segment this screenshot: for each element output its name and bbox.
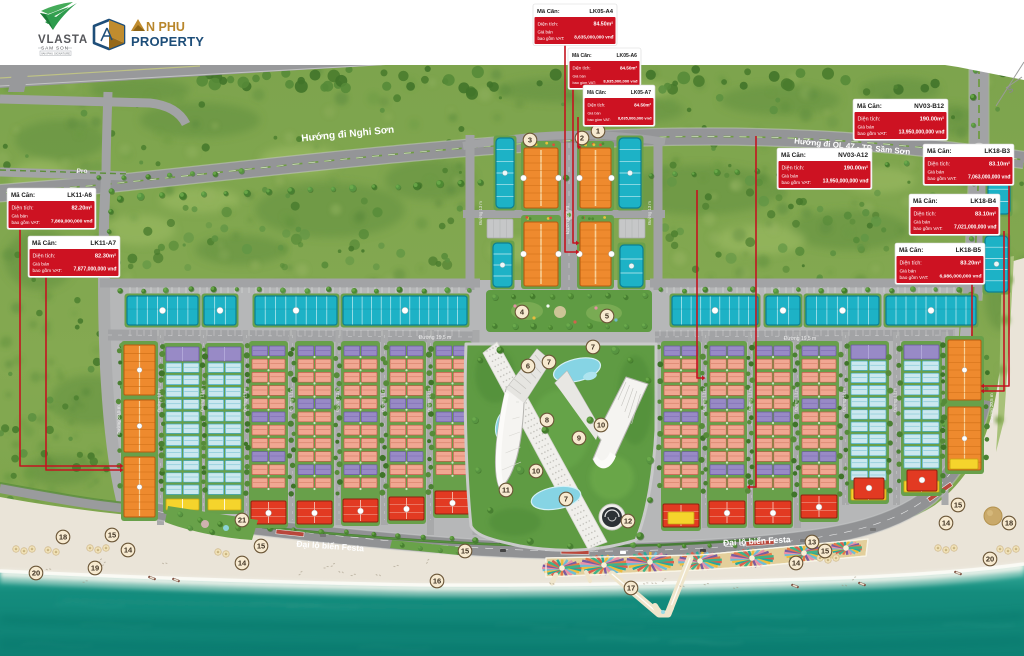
svg-text:Diện tích:: Diện tích: bbox=[538, 22, 559, 28]
svg-text:Giá bán: Giá bán bbox=[588, 112, 601, 116]
svg-text:Đường 13 m: Đường 13 m bbox=[157, 388, 162, 412]
svg-text:Mã Căn:: Mã Căn: bbox=[927, 148, 952, 155]
svg-text:Mã Căn:: Mã Căn: bbox=[32, 240, 57, 247]
svg-text:Mã Căn:: Mã Căn: bbox=[572, 53, 592, 59]
svg-text:LK18-B3: LK18-B3 bbox=[984, 148, 1010, 155]
svg-text:NV03-A12: NV03-A12 bbox=[838, 152, 868, 159]
svg-text:LK05-A4: LK05-A4 bbox=[589, 9, 613, 15]
svg-text:6: 6 bbox=[526, 362, 530, 371]
svg-text:bao gồm VAT:: bao gồm VAT: bbox=[928, 176, 957, 182]
svg-text:82.30m²: 82.30m² bbox=[95, 253, 116, 260]
svg-text:LK11-A7: LK11-A7 bbox=[90, 240, 116, 247]
svg-text:LK18-B4: LK18-B4 bbox=[970, 198, 996, 205]
svg-text:5: 5 bbox=[605, 312, 609, 321]
svg-text:14: 14 bbox=[238, 559, 247, 568]
svg-text:Mã Căn:: Mã Căn: bbox=[913, 198, 938, 205]
svg-text:16: 16 bbox=[433, 577, 441, 586]
svg-text:Đường 13 m: Đường 13 m bbox=[702, 388, 707, 412]
svg-text:Đường 13 m: Đường 13 m bbox=[647, 201, 652, 225]
svg-text:190.00m²: 190.00m² bbox=[844, 165, 868, 172]
svg-text:bao gồm VAT:: bao gồm VAT: bbox=[782, 180, 811, 186]
svg-text:bao gồm VAT:: bao gồm VAT: bbox=[914, 226, 943, 232]
svg-text:Đường 19,5 m: Đường 19,5 m bbox=[419, 335, 451, 341]
svg-text:19: 19 bbox=[91, 564, 99, 573]
svg-text:Đường 19,5 m: Đường 19,5 m bbox=[784, 336, 816, 342]
svg-text:7,021,000,000 vnđ: 7,021,000,000 vnđ bbox=[954, 225, 997, 231]
svg-text:Diện tích:: Diện tích: bbox=[573, 66, 591, 71]
svg-text:Đường 13 m: Đường 13 m bbox=[748, 388, 753, 412]
svg-text:15: 15 bbox=[108, 531, 116, 540]
svg-text:Giá bán: Giá bán bbox=[33, 262, 50, 268]
svg-text:7,063,000,000 vnđ: 7,063,000,000 vnđ bbox=[968, 175, 1011, 181]
svg-text:7: 7 bbox=[591, 343, 595, 352]
svg-text:Giá bán: Giá bán bbox=[538, 30, 554, 35]
svg-text:13,950,000,000 vnđ: 13,950,000,000 vnđ bbox=[823, 179, 870, 185]
svg-text:Đường 13 m: Đường 13 m bbox=[335, 388, 340, 412]
svg-text:LK05-A6: LK05-A6 bbox=[616, 53, 637, 59]
svg-text:bao gồm VAT:: bao gồm VAT: bbox=[900, 275, 929, 280]
svg-text:8,635,000,000 vnđ: 8,635,000,000 vnđ bbox=[618, 116, 652, 121]
svg-text:7: 7 bbox=[564, 495, 568, 504]
svg-text:bao gồm VAT:: bao gồm VAT: bbox=[573, 81, 596, 85]
svg-text:Mã Căn:: Mã Căn: bbox=[587, 90, 607, 96]
svg-text:14: 14 bbox=[942, 519, 951, 528]
svg-text:Diện tích:: Diện tích: bbox=[928, 162, 951, 168]
svg-text:11: 11 bbox=[502, 486, 510, 495]
svg-text:7: 7 bbox=[547, 358, 551, 367]
svg-text:84.50m²: 84.50m² bbox=[620, 66, 638, 71]
svg-text:6,986,000,000 vnđ: 6,986,000,000 vnđ bbox=[940, 274, 983, 280]
svg-text:12: 12 bbox=[624, 517, 632, 526]
svg-text:VLASTA: VLASTA bbox=[38, 34, 88, 46]
svg-text:10: 10 bbox=[532, 467, 540, 476]
svg-text:Mã Căn:: Mã Căn: bbox=[899, 247, 923, 254]
svg-text:bao gồm VAT:: bao gồm VAT: bbox=[588, 118, 611, 122]
svg-text:7,877,000,000 vnđ: 7,877,000,000 vnđ bbox=[73, 267, 117, 273]
svg-text:Đường 13 m: Đường 13 m bbox=[893, 388, 898, 412]
svg-text:Đường 13 m: Đường 13 m bbox=[842, 388, 847, 412]
svg-text:20: 20 bbox=[32, 569, 40, 578]
svg-text:Đường 20,5 m: Đường 20,5 m bbox=[989, 393, 994, 422]
svg-text:Mã Căn:: Mã Căn: bbox=[11, 192, 35, 199]
svg-text:Đường 13 m: Đường 13 m bbox=[243, 388, 248, 412]
svg-text:bao gồm VAT:: bao gồm VAT: bbox=[858, 131, 887, 137]
svg-text:15: 15 bbox=[954, 501, 962, 510]
svg-text:8,635,000,000 vnđ: 8,635,000,000 vnđ bbox=[574, 35, 613, 40]
svg-text:Đường 13 m: Đường 13 m bbox=[381, 388, 386, 412]
svg-text:83.10m²: 83.10m² bbox=[975, 211, 996, 218]
svg-text:NV03-B12: NV03-B12 bbox=[914, 103, 944, 110]
svg-text:17: 17 bbox=[627, 584, 635, 593]
svg-text:8: 8 bbox=[545, 416, 549, 425]
svg-text:13: 13 bbox=[808, 538, 816, 547]
svg-text:21: 21 bbox=[238, 516, 246, 525]
svg-text:Mã Căn:: Mã Căn: bbox=[857, 103, 882, 110]
svg-text:Giá bán: Giá bán bbox=[782, 174, 799, 180]
svg-text:Pro: Pro bbox=[77, 168, 88, 175]
svg-text:Giá bán: Giá bán bbox=[900, 269, 917, 274]
svg-text:Mã Căn:: Mã Căn: bbox=[537, 9, 560, 15]
svg-text:Đường 27 m: Đường 27 m bbox=[565, 206, 571, 234]
svg-text:14: 14 bbox=[124, 546, 133, 555]
svg-text:bao gồm VAT:: bao gồm VAT: bbox=[33, 268, 62, 274]
svg-text:15: 15 bbox=[461, 547, 469, 556]
svg-text:84.50m²: 84.50m² bbox=[634, 103, 651, 108]
svg-text:Đường 13 m: Đường 13 m bbox=[289, 388, 294, 412]
svg-text:Diện tích:: Diện tích: bbox=[858, 117, 881, 123]
svg-text:7,869,000,000 vnđ: 7,869,000,000 vnđ bbox=[51, 219, 93, 225]
svg-text:15: 15 bbox=[257, 542, 265, 551]
svg-text:190.00m²: 190.00m² bbox=[920, 116, 944, 123]
svg-text:Giá bán: Giá bán bbox=[858, 125, 875, 131]
svg-text:Đường 13 m: Đường 13 m bbox=[794, 388, 799, 412]
svg-text:15: 15 bbox=[821, 547, 829, 556]
svg-text:20: 20 bbox=[986, 555, 994, 564]
svg-text:Đường 13 m: Đường 13 m bbox=[200, 388, 205, 412]
svg-text:3: 3 bbox=[528, 136, 532, 145]
svg-text:LK18-B5: LK18-B5 bbox=[956, 247, 982, 254]
svg-text:2: 2 bbox=[580, 134, 584, 143]
svg-text:Đường 13 m: Đường 13 m bbox=[427, 388, 432, 412]
svg-text:14: 14 bbox=[792, 559, 801, 568]
svg-text:Diện tích:: Diện tích: bbox=[900, 261, 922, 267]
svg-text:84.50m²: 84.50m² bbox=[594, 22, 614, 28]
svg-text:8,635,000,000 vnđ: 8,635,000,000 vnđ bbox=[603, 79, 638, 84]
svg-text:Mã Căn:: Mã Căn: bbox=[781, 152, 806, 159]
svg-text:13,950,000,000 vnđ: 13,950,000,000 vnđ bbox=[899, 130, 946, 136]
svg-text:Giá bán: Giá bán bbox=[914, 220, 931, 226]
svg-text:PROPERTY: PROPERTY bbox=[131, 34, 204, 49]
svg-text:83.10m²: 83.10m² bbox=[989, 161, 1010, 168]
svg-text:bao gồm VAT:: bao gồm VAT: bbox=[12, 220, 40, 225]
svg-text:N PHU: N PHU bbox=[146, 20, 185, 34]
svg-text:82.20m²: 82.20m² bbox=[71, 205, 92, 212]
svg-text:10: 10 bbox=[597, 421, 605, 430]
svg-text:Diện tích:: Diện tích: bbox=[588, 103, 606, 108]
svg-text:Diện tích:: Diện tích: bbox=[12, 206, 34, 212]
svg-text:bao gồm VAT:: bao gồm VAT: bbox=[538, 36, 565, 41]
svg-text:LK11-A6: LK11-A6 bbox=[67, 192, 92, 199]
svg-text:Diện tích:: Diện tích: bbox=[914, 212, 937, 218]
svg-text:Đường 20,5 m: Đường 20,5 m bbox=[116, 405, 121, 434]
svg-text:18: 18 bbox=[59, 533, 67, 542]
svg-text:Diện tích:: Diện tích: bbox=[33, 254, 56, 260]
svg-text:83.20m²: 83.20m² bbox=[960, 260, 981, 267]
svg-text:1: 1 bbox=[596, 127, 600, 136]
svg-text:9: 9 bbox=[577, 434, 581, 443]
svg-text:Diện tích:: Diện tích: bbox=[782, 166, 805, 172]
svg-text:VAN PHU SIGNATURE: VAN PHU SIGNATURE bbox=[41, 52, 70, 56]
svg-text:Giá bán: Giá bán bbox=[12, 214, 29, 219]
svg-text:LK05-A7: LK05-A7 bbox=[631, 90, 652, 96]
svg-text:Giá bán: Giá bán bbox=[928, 170, 945, 176]
svg-text:Giá bán: Giá bán bbox=[573, 75, 586, 79]
svg-text:Đường 13 m: Đường 13 m bbox=[478, 201, 483, 225]
svg-text:18: 18 bbox=[1005, 519, 1013, 528]
